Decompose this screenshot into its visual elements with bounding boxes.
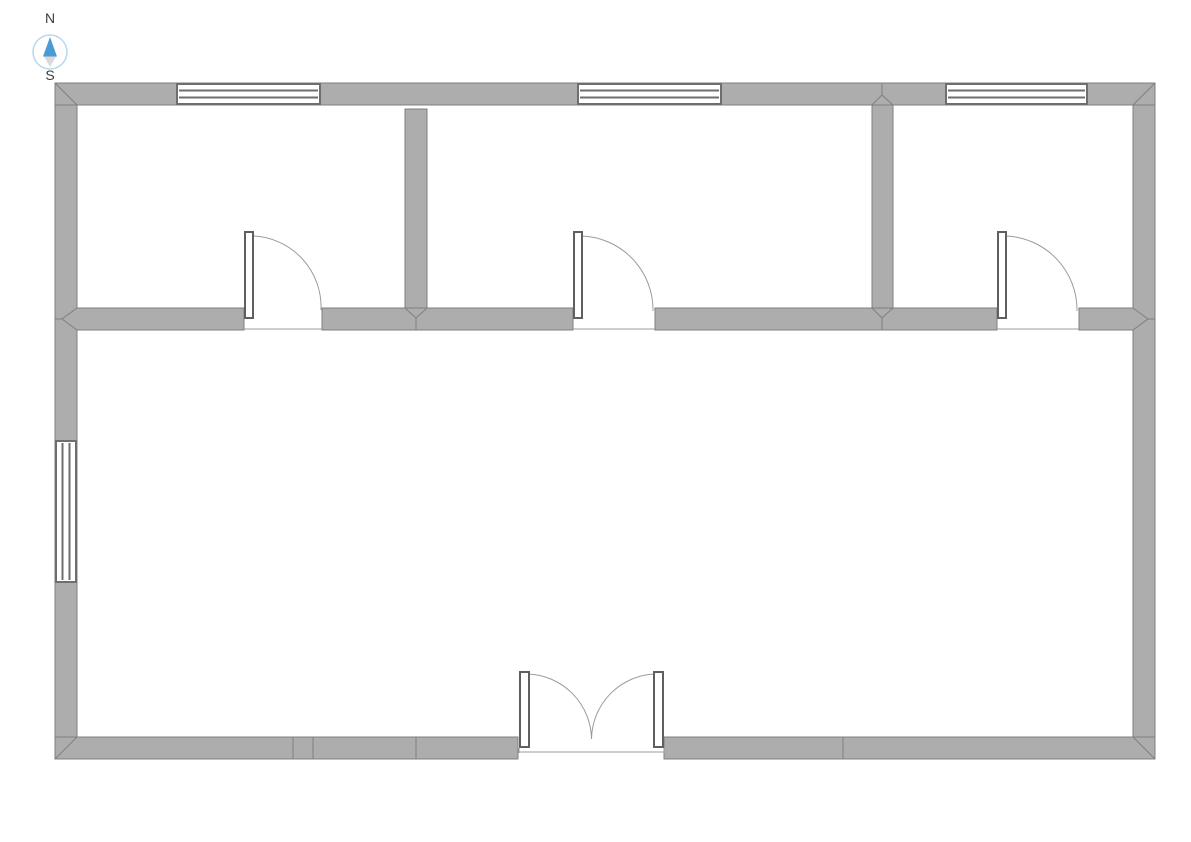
interior-wall-segment-mid-1[interactable] [322,308,573,330]
door-entrance-double[interactable] [519,672,664,753]
door-swing-arc [253,236,321,310]
door-swing-arc-right [592,674,656,739]
door-swing-arc [582,236,653,311]
wall-south-left-segment[interactable] [55,737,518,759]
interior-wall-vertical-2[interactable] [872,84,893,330]
wall-east[interactable] [1133,105,1155,737]
door-room-2[interactable] [573,232,655,329]
door-leaf[interactable] [998,232,1006,318]
door-room-3[interactable] [997,232,1079,329]
compass-north-label: N [45,10,55,26]
window-west[interactable] [56,441,76,582]
door-leaf[interactable] [574,232,582,318]
window-north-1[interactable] [177,84,320,104]
window-north-2[interactable] [578,84,721,104]
compass-south-label: S [45,67,54,83]
interior-wall-segment-right[interactable] [1079,308,1148,330]
door-room-1[interactable] [244,232,322,329]
compass: N S [33,10,67,83]
interior-wall-segment-left[interactable] [62,308,244,330]
floorplan-canvas[interactable]: N S [0,0,1191,842]
door-leaf[interactable] [245,232,253,318]
wall-west[interactable] [55,105,77,737]
door-swing-arc [1006,236,1077,311]
window-north-3[interactable] [946,84,1087,104]
interior-wall-horizontal[interactable] [55,308,1155,330]
door-leaf-left[interactable] [520,672,529,747]
outer-walls[interactable] [55,83,1155,759]
interior-wall-vertical-1[interactable] [405,109,427,330]
interior-wall-segment-mid-2[interactable] [655,308,997,330]
door-swing-arc-left [528,674,592,739]
wall-south-right-segment[interactable] [664,737,1155,759]
door-leaf-right[interactable] [654,672,663,747]
